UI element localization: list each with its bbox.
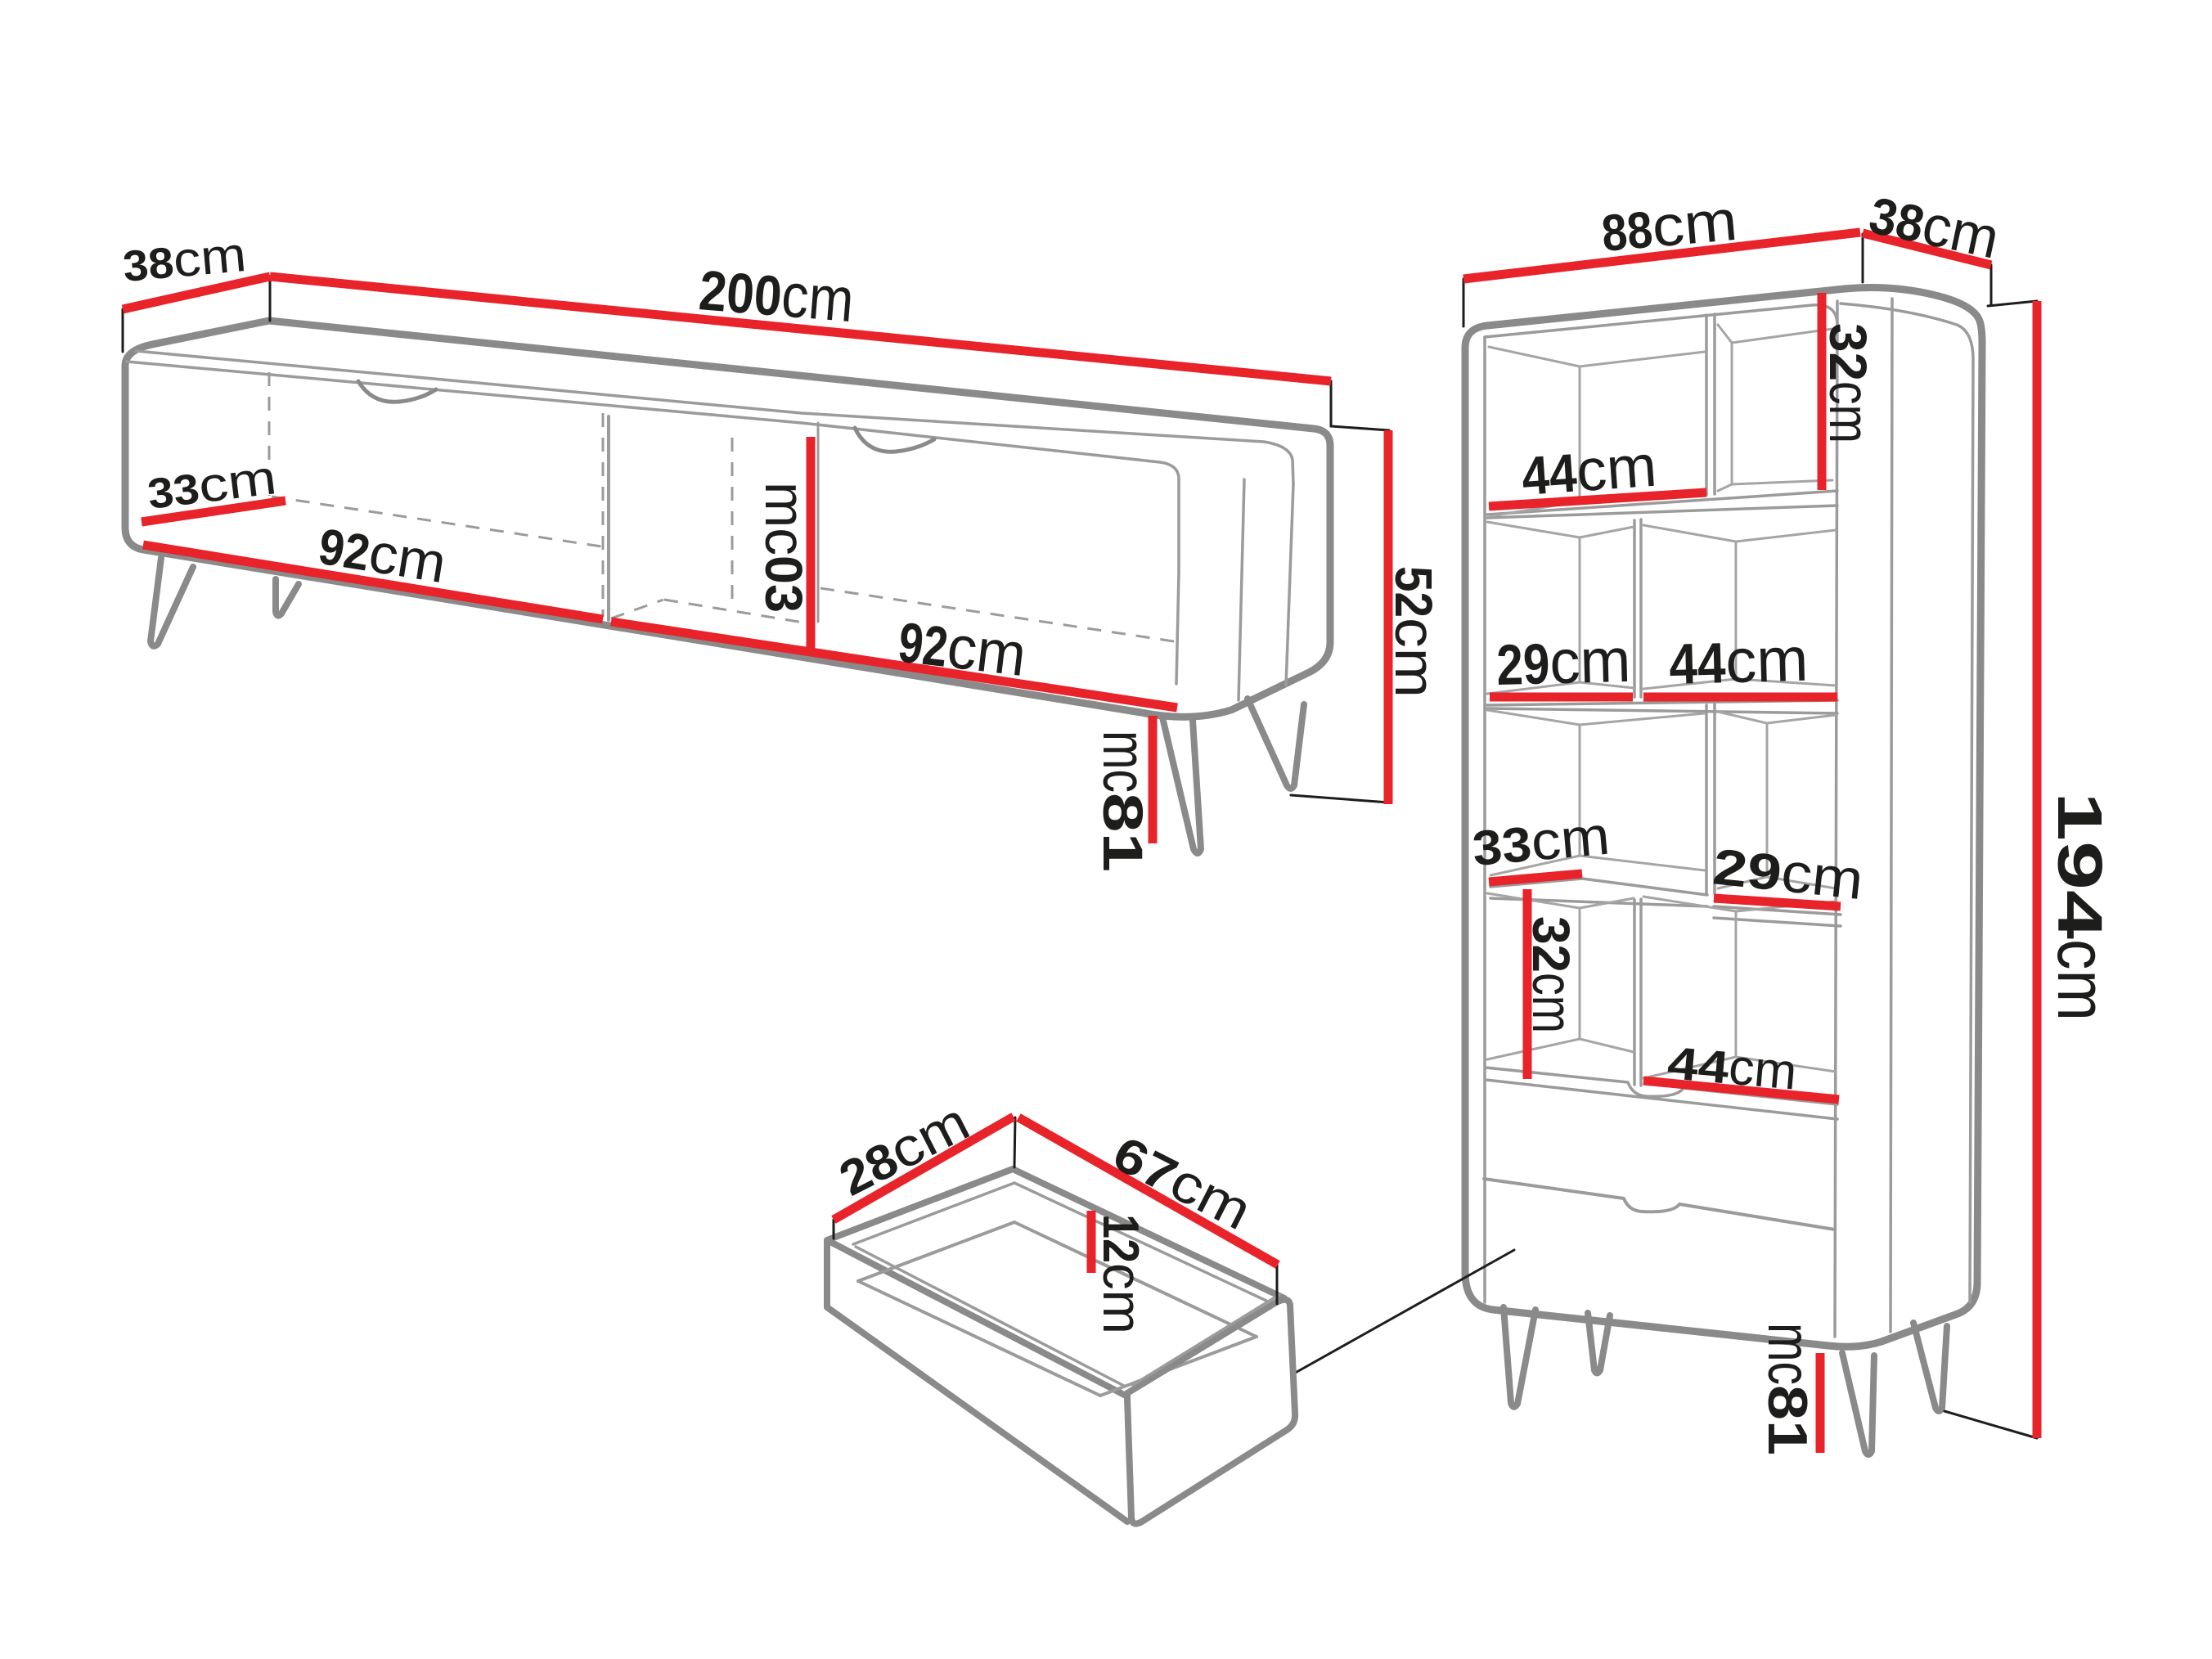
svg-text:29cm: 29cm <box>1495 626 1631 699</box>
svg-text:52cm: 52cm <box>1383 566 1447 698</box>
svg-text:44cm: 44cm <box>1668 625 1809 698</box>
svg-text:mc03: mc03 <box>753 482 817 613</box>
svg-text:200cm: 200cm <box>697 254 856 335</box>
svg-text:mc81: mc81 <box>1090 731 1159 872</box>
svg-text:mc81: mc81 <box>1756 1323 1823 1455</box>
svg-text:32cm: 32cm <box>1818 323 1882 443</box>
svg-text:194cm: 194cm <box>2043 792 2120 1021</box>
svg-text:12cm: 12cm <box>1091 1214 1153 1334</box>
svg-text:32cm: 32cm <box>1521 916 1585 1033</box>
svg-text:44cm: 44cm <box>1520 434 1659 508</box>
